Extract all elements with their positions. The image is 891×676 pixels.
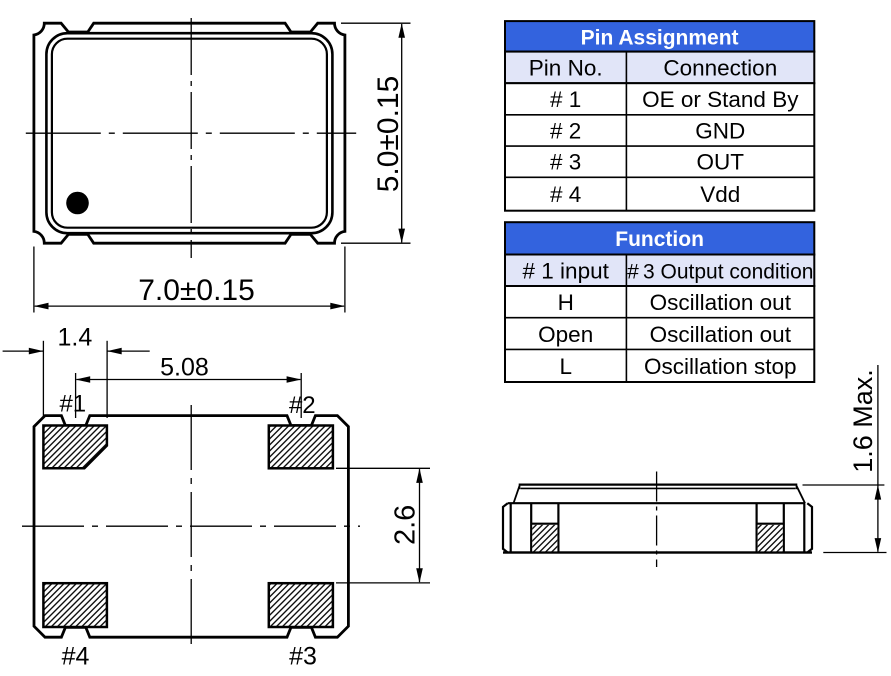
svg-text:OUT: OUT	[697, 150, 745, 175]
svg-text:Connection: Connection	[663, 56, 777, 81]
svg-text:L: L	[559, 354, 572, 379]
svg-text:# 1: # 1	[550, 87, 581, 112]
svg-text:5.0±0.15: 5.0±0.15	[372, 76, 405, 193]
svg-text:# 3 Output condition: # 3 Output condition	[627, 260, 813, 283]
svg-text:#1: #1	[59, 391, 86, 418]
svg-text:2.6: 2.6	[390, 505, 422, 545]
svg-text:# 1 input: # 1 input	[523, 258, 610, 283]
svg-text:H: H	[558, 290, 574, 315]
svg-text:5.08: 5.08	[160, 354, 209, 382]
svg-text:Function: Function	[615, 228, 704, 251]
svg-text:GND: GND	[695, 119, 745, 144]
svg-text:Open: Open	[538, 322, 593, 347]
svg-text:Oscillation out: Oscillation out	[650, 322, 792, 347]
svg-text:Vdd: Vdd	[700, 182, 740, 207]
svg-text:#4: #4	[62, 643, 90, 671]
svg-text:#2: #2	[289, 392, 316, 419]
svg-text:# 4: # 4	[550, 182, 581, 207]
svg-text:1.6 Max.: 1.6 Max.	[848, 369, 878, 473]
svg-text:OE or Stand By: OE or Stand By	[642, 87, 799, 112]
svg-text:#3: #3	[289, 643, 317, 671]
svg-text:1.4: 1.4	[58, 324, 93, 352]
svg-text:Oscillation stop: Oscillation stop	[644, 354, 797, 379]
svg-text:# 2: # 2	[550, 119, 581, 144]
svg-text:Pin No.: Pin No.	[529, 56, 603, 81]
svg-text:Oscillation out: Oscillation out	[650, 290, 792, 315]
svg-text:Pin Assignment: Pin Assignment	[581, 26, 739, 49]
svg-text:# 3: # 3	[550, 150, 581, 175]
svg-text:7.0±0.15: 7.0±0.15	[138, 274, 255, 307]
